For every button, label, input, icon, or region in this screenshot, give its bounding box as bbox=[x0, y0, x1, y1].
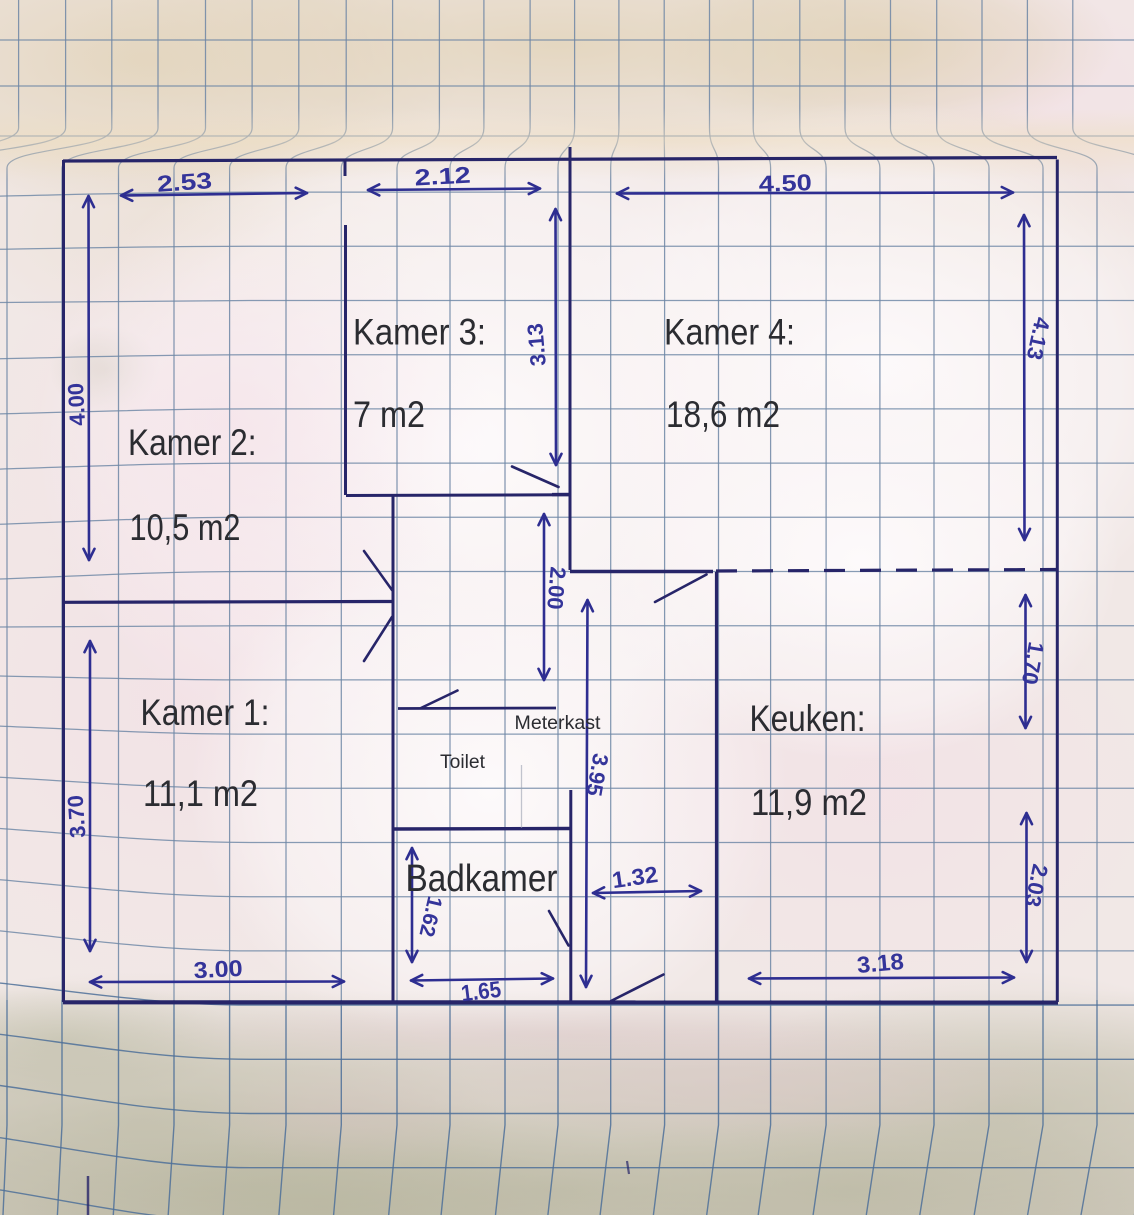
svg-text:3.70: 3.70 bbox=[63, 794, 91, 838]
svg-text:Toilet: Toilet bbox=[440, 752, 486, 773]
svg-text:2.53: 2.53 bbox=[156, 167, 213, 197]
svg-text:2.12: 2.12 bbox=[414, 162, 471, 191]
svg-text:Kamer 2:: Kamer 2: bbox=[128, 422, 257, 463]
svg-text:11,1 m2: 11,1 m2 bbox=[143, 773, 258, 814]
svg-text:Badkamer: Badkamer bbox=[406, 858, 558, 900]
svg-text:3.00: 3.00 bbox=[193, 955, 243, 984]
svg-text:7 m2: 7 m2 bbox=[353, 394, 425, 435]
svg-text:Keuken:: Keuken: bbox=[750, 698, 866, 739]
svg-text:10,5 m2: 10,5 m2 bbox=[130, 507, 241, 548]
svg-text:11,9 m2: 11,9 m2 bbox=[751, 782, 867, 823]
svg-text:Kamer 1:: Kamer 1: bbox=[141, 692, 270, 733]
svg-text:3.13: 3.13 bbox=[522, 322, 551, 367]
svg-text:Kamer 3:: Kamer 3: bbox=[353, 312, 486, 353]
svg-text:2.00: 2.00 bbox=[542, 566, 571, 611]
svg-text:4.00: 4.00 bbox=[63, 382, 90, 426]
svg-text:1.65: 1.65 bbox=[460, 976, 503, 1007]
svg-text:Kamer 4:: Kamer 4: bbox=[664, 312, 795, 353]
svg-text:Meterkast: Meterkast bbox=[515, 712, 602, 734]
svg-text:3.18: 3.18 bbox=[856, 948, 905, 978]
svg-text:4.50: 4.50 bbox=[758, 169, 812, 197]
svg-text:18,6 m2: 18,6 m2 bbox=[666, 394, 780, 435]
